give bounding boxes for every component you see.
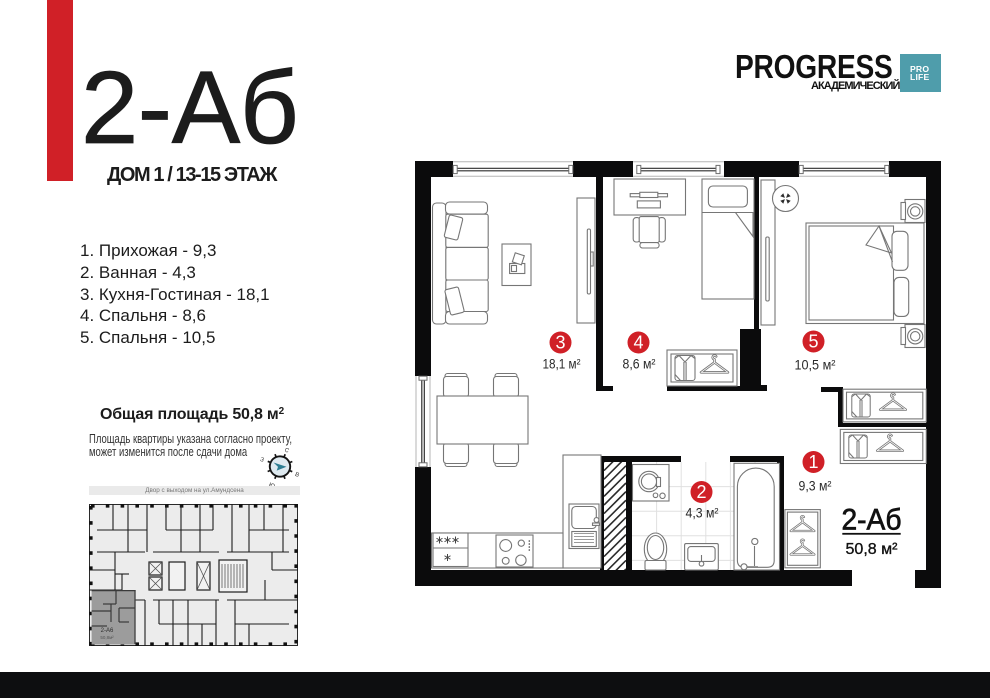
svg-text:50,8 м²: 50,8 м² <box>846 541 899 558</box>
svg-text:2-Аб: 2-Аб <box>842 504 902 537</box>
svg-text:3: 3 <box>555 333 565 353</box>
svg-text:С: С <box>283 447 290 454</box>
svg-text:З: З <box>259 457 265 464</box>
svg-text:2-А6: 2-А6 <box>101 628 114 634</box>
svg-text:5: 5 <box>808 332 818 352</box>
svg-text:4: 4 <box>633 333 643 353</box>
svg-text:1: 1 <box>808 452 818 472</box>
svg-text:4,3 м²: 4,3 м² <box>686 506 719 521</box>
svg-text:В: В <box>294 472 300 479</box>
svg-text:50,8м²: 50,8м² <box>100 635 114 640</box>
svg-text:18,1 м²: 18,1 м² <box>543 357 581 372</box>
svg-text:8,6 м²: 8,6 м² <box>623 357 656 372</box>
svg-text:9,3 м²: 9,3 м² <box>799 478 832 493</box>
svg-text:10,5 м²: 10,5 м² <box>795 358 836 373</box>
svg-text:2: 2 <box>696 482 706 502</box>
